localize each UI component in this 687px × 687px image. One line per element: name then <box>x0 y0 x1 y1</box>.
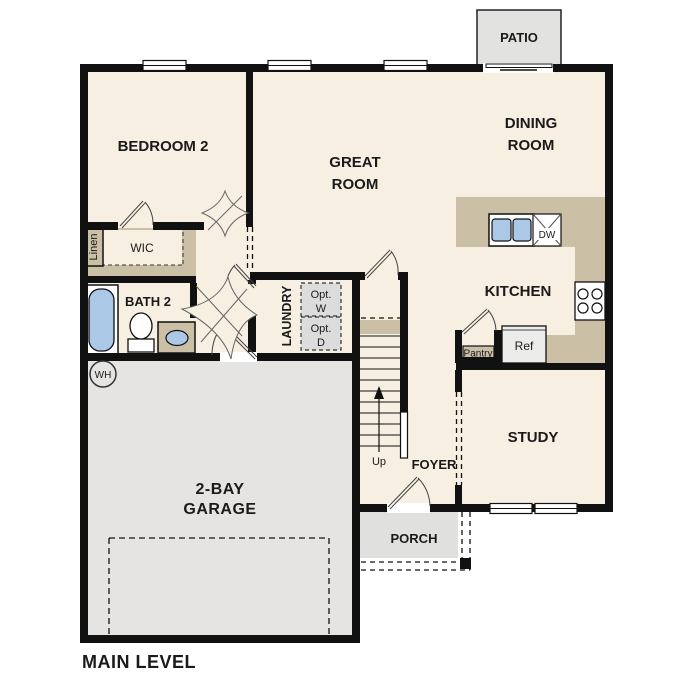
vanity-sink <box>166 331 188 346</box>
wall-bedroom-bottom-a <box>84 222 118 230</box>
kitchen-bottom-counter <box>545 335 605 363</box>
window-study-2 <box>535 504 577 514</box>
refrigerator-label: Ref <box>515 339 534 353</box>
burner <box>578 289 588 299</box>
wall-right <box>605 64 613 512</box>
window-study-1 <box>490 504 532 514</box>
floor-plan-page: DW Ref Pantry Opt. W Opt. D <box>0 0 687 687</box>
opt-washer-line2: W <box>316 303 327 315</box>
floor-plan-svg: DW Ref Pantry Opt. W Opt. D <box>0 0 687 687</box>
dishwasher: DW <box>533 214 561 246</box>
wall-garage-right <box>352 272 360 643</box>
great-room-label-line1: GREAT <box>329 154 380 171</box>
main-level-label: MAIN LEVEL <box>82 652 196 672</box>
laundry-label: LAUNDRY <box>280 285 294 346</box>
wall-stair-right <box>400 272 408 412</box>
stair-railing <box>401 412 408 458</box>
dining-room-label-line1: DINING <box>505 115 558 132</box>
dishwasher-label: DW <box>539 230 556 241</box>
opt-dryer-line2: D <box>317 337 325 349</box>
optional-appliances: Opt. W Opt. D <box>301 283 341 350</box>
sink-basin-right <box>513 219 531 241</box>
window-greatroom-2 <box>384 61 427 71</box>
wall-garage-top-b <box>257 353 360 361</box>
window-greatroom-1 <box>268 61 311 71</box>
kitchen-label: KITCHEN <box>485 283 552 300</box>
front-door-opening <box>387 503 430 513</box>
foyer-label: FOYER <box>412 457 457 472</box>
garage-label-line1: 2-BAY <box>195 481 244 498</box>
garage-label-line2: GARAGE <box>183 501 256 518</box>
porch-post <box>460 558 471 569</box>
patio-label: PATIO <box>500 30 538 45</box>
burner <box>592 289 602 299</box>
dining-room-label-line2: ROOM <box>508 137 555 154</box>
linen-label: Linen <box>88 234 100 261</box>
bathtub <box>89 289 114 351</box>
refrigerator: Ref <box>502 326 546 363</box>
toilet-tank <box>128 339 154 352</box>
water-heater: WH <box>90 361 116 387</box>
garage-door-opening-hall <box>220 352 257 362</box>
wall-greatroom-bottom <box>250 272 365 280</box>
water-heater-label: WH <box>95 370 112 381</box>
wall-garage-front <box>80 635 360 643</box>
window-bedroom <box>143 61 186 71</box>
pantry-closet: Pantry <box>462 336 494 360</box>
study-label: STUDY <box>508 429 559 446</box>
kitchen-right-counter-lower <box>575 319 605 337</box>
wall-study-left-b <box>455 485 462 505</box>
great-room-label-line2: ROOM <box>332 176 379 193</box>
burner <box>578 303 588 313</box>
stair-landing-shelf <box>360 320 400 334</box>
wall-bedroom-bottom-b <box>153 222 204 230</box>
bath2-label: BATH 2 <box>125 294 171 309</box>
bedroom2-label: BEDROOM 2 <box>118 138 209 155</box>
wall-study-top <box>456 363 606 370</box>
toilet-bowl <box>130 313 152 339</box>
wall-pantry-bottom <box>455 357 502 363</box>
wall-garage-top-a <box>84 353 220 361</box>
wall-bedroom-right <box>246 67 253 227</box>
sink-basin-left <box>492 219 511 241</box>
kitchen-right-counter-upper <box>575 247 605 283</box>
wall-study-left-a <box>455 370 462 392</box>
opt-washer-line1: Opt. <box>311 289 332 301</box>
range-stove <box>575 282 605 320</box>
porch-label: PORCH <box>391 531 438 546</box>
up-label: Up <box>372 456 386 468</box>
burner <box>592 303 602 313</box>
opt-dryer-line1: Opt. <box>311 323 332 335</box>
wall-wic-bottom <box>84 276 196 283</box>
wic-label: WIC <box>130 241 154 255</box>
